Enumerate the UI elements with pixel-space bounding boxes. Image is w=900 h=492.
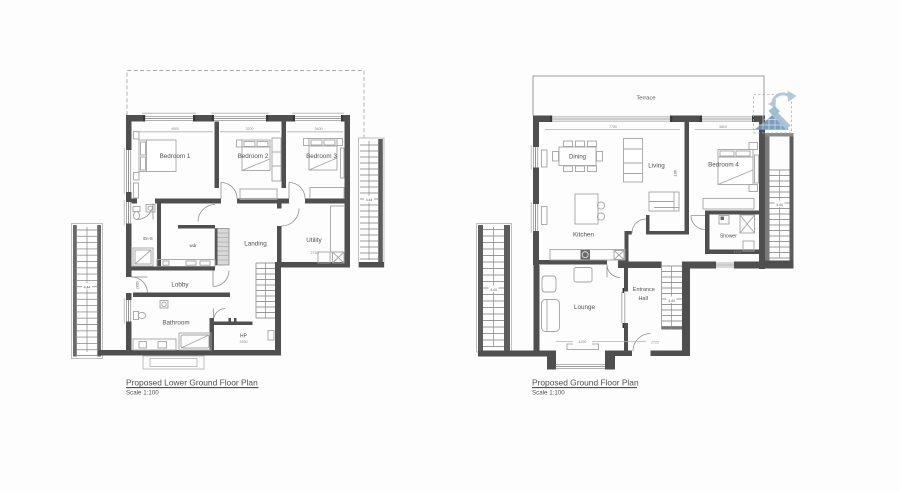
svg-text:Kitchen: Kitchen [573, 232, 595, 239]
svg-text:4.44: 4.44 [776, 203, 783, 207]
svg-text:Utility: Utility [306, 237, 322, 244]
svg-text:1.88: 1.88 [674, 170, 678, 176]
svg-text:Scale 1:100: Scale 1:100 [126, 390, 159, 397]
svg-text:(900): (900) [136, 281, 140, 288]
svg-text:Bedroom 1: Bedroom 1 [160, 153, 191, 160]
svg-text:2730: 2730 [311, 251, 319, 255]
svg-text:Dining: Dining [569, 155, 586, 161]
svg-text:Lounge: Lounge [574, 304, 596, 311]
svg-text:Proposed Lower Ground Floor Pl: Proposed Lower Ground Floor Plan [126, 378, 258, 388]
svg-text:Shower: Shower [720, 233, 737, 239]
svg-text:2725: 2725 [651, 341, 659, 345]
svg-text:Living: Living [648, 163, 665, 170]
svg-text:wdr: wdr [189, 243, 197, 248]
svg-text:En-S: En-S [143, 236, 153, 241]
svg-text:Bedroom 3: Bedroom 3 [306, 153, 337, 160]
svg-text:Terrace: Terrace [636, 96, 655, 102]
svg-text:Proposed Ground Floor Plan: Proposed Ground Floor Plan [532, 378, 639, 388]
svg-text:4.44: 4.44 [668, 299, 675, 303]
svg-text:Bedroom 4: Bedroom 4 [708, 161, 739, 168]
svg-text:1175: 1175 [734, 250, 742, 254]
svg-text:4000: 4000 [171, 127, 179, 131]
svg-text:3400: 3400 [315, 127, 323, 131]
svg-text:Bathroom: Bathroom [162, 320, 189, 327]
svg-text:4.44: 4.44 [84, 285, 91, 289]
svg-text:7750: 7750 [609, 125, 617, 129]
svg-text:Landing: Landing [244, 241, 267, 248]
svg-text:Lobby: Lobby [171, 281, 189, 288]
svg-text:3150: 3150 [240, 340, 248, 344]
svg-text:4.44: 4.44 [490, 288, 497, 292]
svg-text:Hall: Hall [638, 296, 647, 302]
svg-text:3200: 3200 [246, 127, 254, 131]
svg-text:4.44: 4.44 [366, 198, 373, 202]
svg-text:Entrance: Entrance [633, 287, 655, 293]
svg-text:Scale 1:100: Scale 1:100 [532, 390, 565, 397]
svg-text:HP: HP [240, 334, 248, 340]
svg-text:Bedroom 2: Bedroom 2 [238, 153, 269, 160]
svg-text:3800: 3800 [719, 125, 727, 129]
svg-text:4290: 4290 [579, 340, 587, 344]
